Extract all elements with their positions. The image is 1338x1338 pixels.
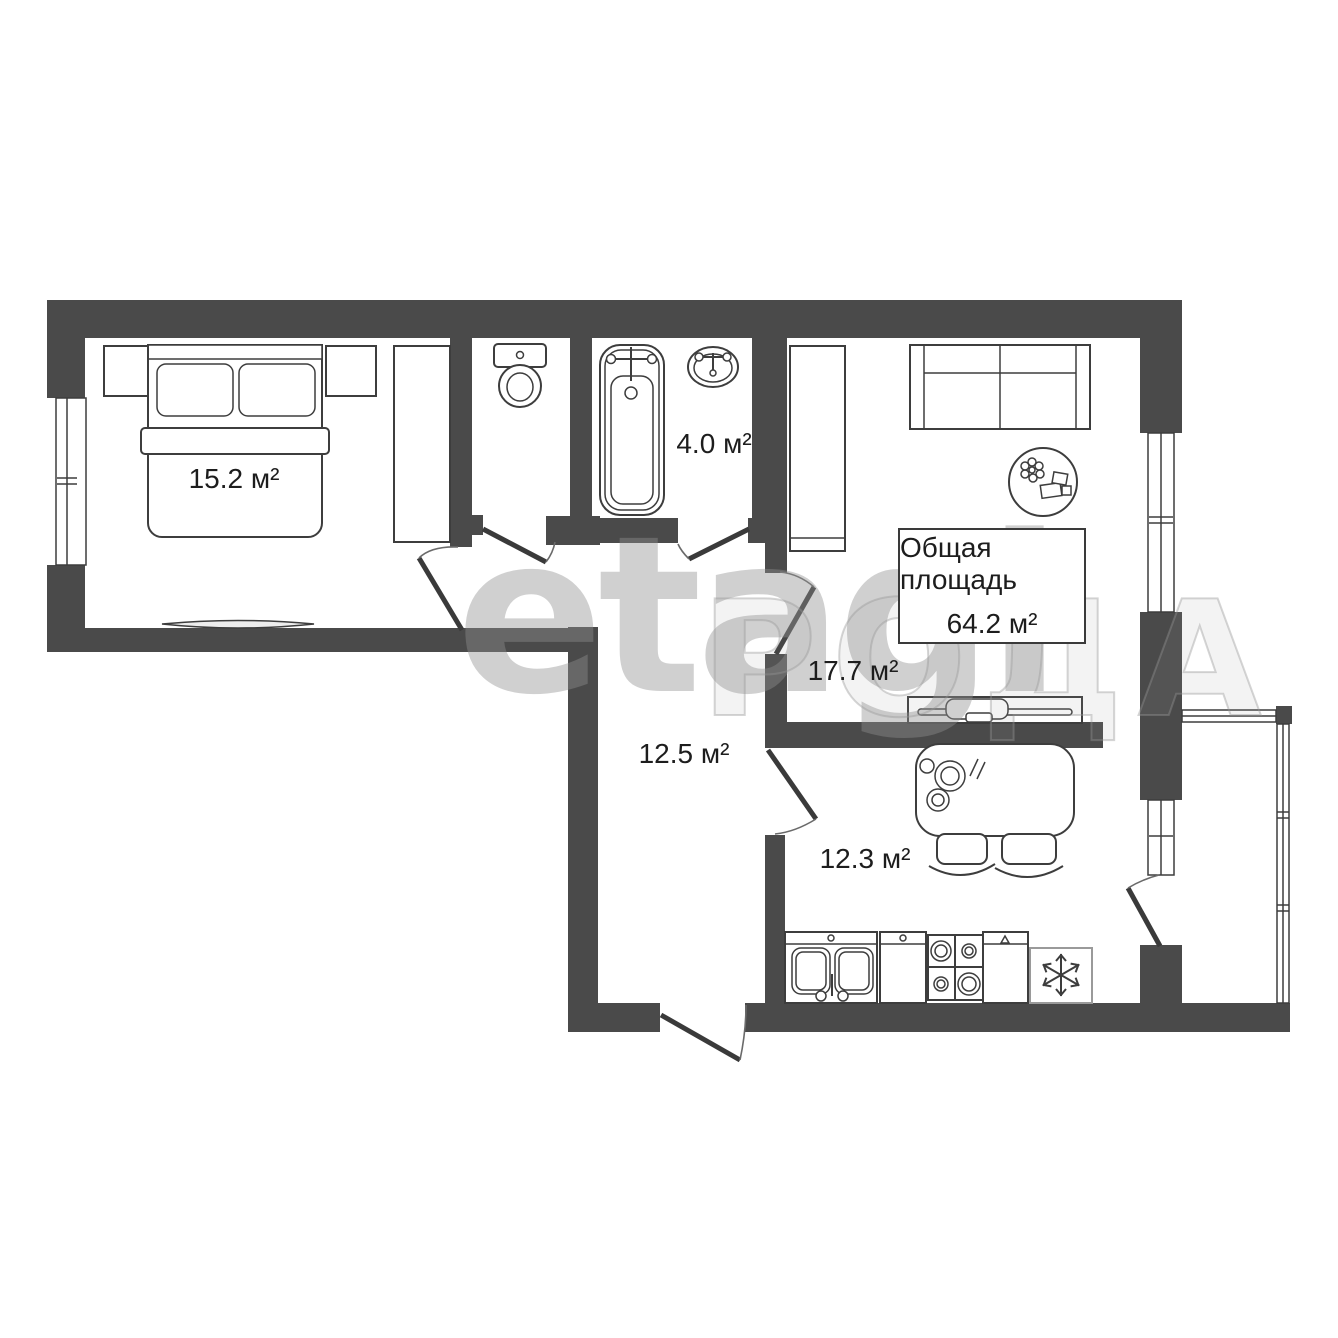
radiator-icon [162,621,314,629]
floor-plan: etagi РОДА 15.2 м² 4.0 м² 17.7 м² 12.5 м… [0,0,1338,1338]
bedroom-wardrobe-icon [394,346,450,542]
wall-segment [752,338,787,518]
wall-segment [472,515,483,535]
room-label-living: 17.7 м² [808,655,899,687]
bedroom-door [419,547,462,630]
chair-icon [995,834,1063,877]
wall-segment [570,338,592,518]
bedroom-window [47,398,86,565]
wall-segment [570,518,678,543]
room-label-kitchen: 12.3 м² [820,843,911,875]
total-area-title: Общая площадь [900,532,1084,596]
kitchen-window [1140,800,1182,875]
nightstand-icon [104,346,148,396]
wall-segment [47,628,598,652]
floor-plan-drawing [0,0,1338,1338]
bathroom-sink-icon [688,347,738,387]
wall-segment [1276,706,1292,724]
living-room-door [776,572,814,654]
dining-table-icon [916,744,1074,836]
room-label-bedroom: 15.2 м² [189,463,280,495]
wall-segment [1140,945,1182,1003]
decor-plant-icon [1009,448,1077,516]
tv-stand-icon [908,697,1082,723]
bathroom-door [678,529,749,559]
entrance-door [661,1005,746,1060]
bathtub-icon [600,345,664,515]
wc-door [483,529,555,562]
nightstand-icon [326,346,376,396]
stove-icon [928,935,983,1000]
room-label-hallway: 12.5 м² [639,738,730,770]
wall-segment [1140,338,1182,433]
sofa-icon [910,345,1090,429]
total-area-value: 64.2 м² [947,608,1038,640]
wall-segment [1140,612,1182,800]
total-area-box: Общая площадь 64.2 м² [898,528,1086,644]
kitchen-sink-icon [785,932,877,1003]
toilet-icon [494,344,546,407]
balcony-door [1128,875,1160,946]
wall-segment [765,835,785,1003]
wall-segment [568,1003,660,1032]
living-wardrobe-icon [790,346,845,551]
kitchen-cabinet-icon [983,932,1028,1003]
kitchen-door [768,750,816,834]
pillow-icon [157,364,233,416]
bed-icon [141,345,329,537]
fridge-icon [1030,948,1092,1003]
wall-segment [765,518,787,573]
wall-segment [745,1003,1290,1032]
pillow-icon [239,364,315,416]
living-room-window [1140,433,1182,612]
wall-segment [568,627,598,1032]
wall-segment [450,338,472,547]
room-label-bathroom: 4.0 м² [676,428,751,460]
wall-segment [47,300,1182,338]
wall-segment [47,338,85,398]
chair-icon [929,834,995,875]
kitchen-cabinet-icon [880,932,926,1003]
balcony-glazing [1182,710,1289,1003]
